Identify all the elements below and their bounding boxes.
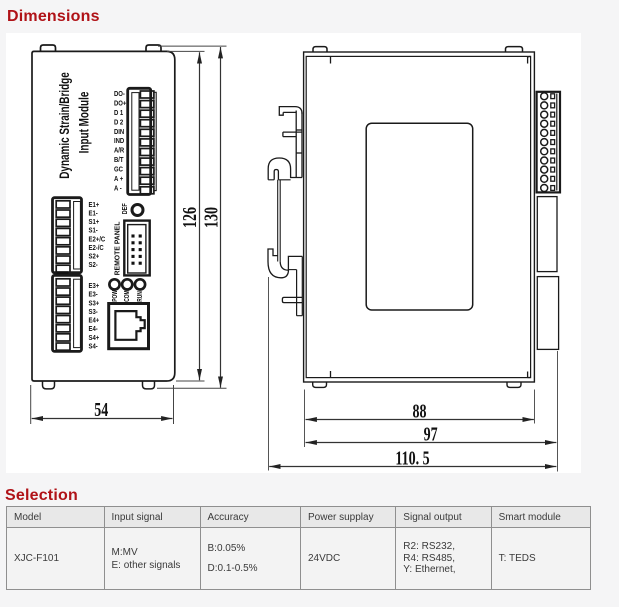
- svg-text:Input Module: Input Module: [76, 91, 92, 153]
- svg-text:REMOTE PANEL: REMOTE PANEL: [114, 221, 121, 275]
- svg-text:B/T: B/T: [114, 157, 124, 165]
- svg-text:DO-: DO-: [114, 91, 125, 99]
- svg-text:IND: IND: [114, 138, 124, 146]
- svg-text:POW: POW: [112, 290, 119, 302]
- svg-text:S2-: S2-: [88, 262, 97, 270]
- svg-text:A +: A +: [114, 176, 123, 184]
- svg-text:A/R: A/R: [114, 147, 124, 155]
- svg-text:S4-: S4-: [88, 343, 97, 351]
- svg-text:E3+: E3+: [88, 283, 99, 291]
- svg-text:S1-: S1-: [88, 227, 97, 235]
- svg-text:DIN: DIN: [114, 128, 124, 136]
- svg-text:88: 88: [413, 400, 427, 422]
- svg-text:130: 130: [200, 207, 222, 228]
- svg-text:GC: GC: [114, 166, 123, 174]
- svg-text:S1+: S1+: [88, 219, 99, 227]
- svg-text:E4-: E4-: [88, 326, 97, 334]
- svg-text:126: 126: [179, 207, 201, 228]
- svg-text:COM: COM: [125, 290, 132, 301]
- svg-text:E2-/C: E2-/C: [88, 244, 103, 252]
- svg-text:S3+: S3+: [88, 300, 99, 308]
- svg-text:D 1: D 1: [114, 109, 124, 117]
- svg-text:S3-: S3-: [88, 309, 97, 317]
- svg-text:DEF: DEF: [121, 203, 129, 214]
- svg-text:110. 5: 110. 5: [395, 447, 429, 469]
- svg-text:97: 97: [424, 423, 438, 445]
- svg-text:A -: A -: [114, 185, 122, 193]
- svg-text:S2+: S2+: [88, 253, 99, 261]
- svg-text:E2+/C: E2+/C: [88, 236, 105, 244]
- svg-text:54: 54: [94, 399, 108, 421]
- svg-text:D 2: D 2: [114, 119, 124, 127]
- svg-text:Dynamic Strain/Bridge: Dynamic Strain/Bridge: [56, 72, 72, 179]
- svg-text:RUN: RUN: [137, 291, 144, 302]
- svg-text:E1+: E1+: [88, 201, 99, 209]
- svg-text:E1-: E1-: [88, 210, 97, 218]
- svg-text:E3-: E3-: [88, 291, 97, 299]
- svg-text:S4+: S4+: [88, 334, 99, 342]
- svg-text:DO+: DO+: [114, 100, 127, 108]
- svg-text:E4+: E4+: [88, 317, 99, 325]
